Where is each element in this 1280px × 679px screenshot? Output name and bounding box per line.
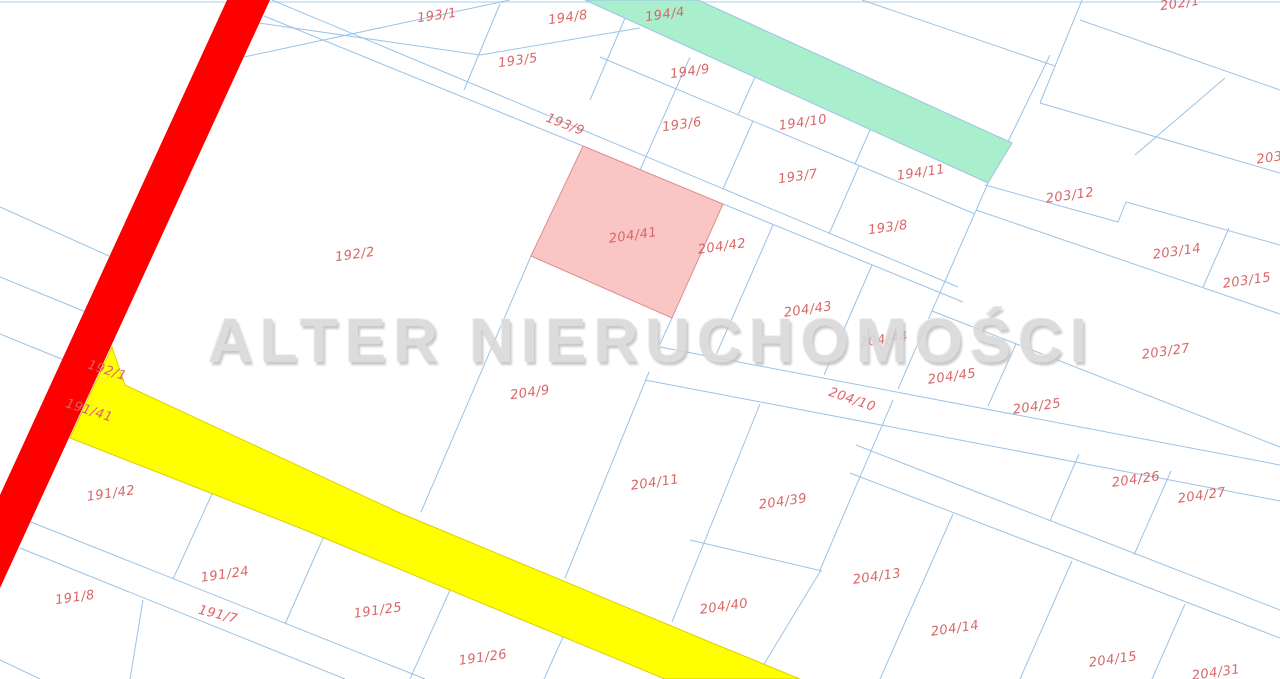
- cadastral-map-canvas[interactable]: 193/1194/8194/4202/1193/5194/9193/9193/6…: [0, 0, 1280, 679]
- parcel-label: 193/7: [777, 167, 819, 187]
- parcel-label: 203/15: [1222, 270, 1272, 292]
- parcel-label: 191/41: [64, 396, 115, 425]
- parcel-label: 193/6: [661, 115, 703, 135]
- watermark-text: ALTER NIERUCHOMOŚCI: [208, 306, 1094, 377]
- parcel-label: 204/10: [827, 385, 878, 415]
- parcel-label: 204/15: [1088, 649, 1138, 671]
- parcel-label: 203/14: [1152, 241, 1202, 263]
- parcel-label: 204/11: [630, 472, 680, 494]
- parcel-label: 204/42: [697, 236, 747, 258]
- parcel-label: 191/25: [353, 600, 403, 622]
- parcel-label: 204/40: [699, 596, 749, 618]
- parcel-label: 194/11: [896, 162, 946, 184]
- parcel-label: 191/24: [200, 564, 250, 586]
- parcel-label: 193/5: [497, 51, 539, 71]
- parcel-label: 202/1: [1159, 0, 1201, 14]
- parcel-label: 194/4: [644, 5, 686, 25]
- parcel-label: 204/26: [1111, 469, 1161, 491]
- parcel-label: 203/12: [1045, 185, 1095, 207]
- parcel-label: 204/41: [608, 225, 658, 247]
- parcel-label: 204/14: [930, 618, 980, 640]
- parcel-label: 191/8: [54, 588, 96, 608]
- parcel-label: 204/31: [1191, 662, 1241, 679]
- parcel-label: 203/27: [1141, 341, 1191, 363]
- parcel-label: 191/26: [458, 647, 508, 669]
- parcel-label: 192/2: [334, 245, 376, 265]
- parcel-label: 191/7: [197, 603, 239, 627]
- parcel-label: 204/9: [509, 383, 551, 403]
- parcel-label: 193/8: [867, 218, 909, 238]
- parcel-label: 194/10: [778, 112, 828, 134]
- parcel-label: 204/25: [1012, 396, 1062, 418]
- parcel-label: 192/1: [86, 358, 129, 385]
- parcel-label: 194/9: [669, 62, 711, 82]
- parcel-label: 204/27: [1177, 485, 1227, 507]
- parcel-label: 193/9: [544, 111, 587, 139]
- parcel-label: 204/39: [758, 491, 808, 513]
- parcel-label: 204/13: [852, 566, 902, 588]
- parcel-label: 191/42: [86, 483, 136, 505]
- parcel-label: 194/8: [547, 8, 589, 28]
- parcel-label: 193/1: [416, 6, 458, 26]
- parcel-label: 203/: [1256, 148, 1280, 167]
